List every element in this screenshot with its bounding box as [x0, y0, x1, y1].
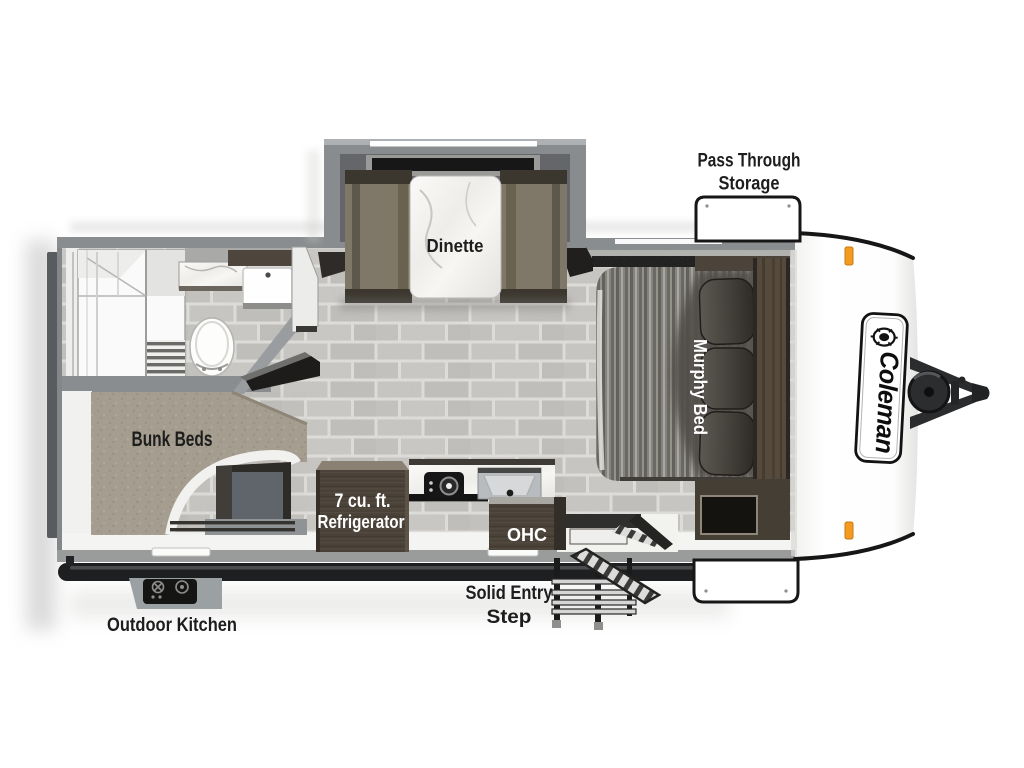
svg-text:Coleman: Coleman — [870, 351, 905, 454]
svg-text:Dinette: Dinette — [427, 235, 484, 256]
svg-text:Step: Step — [487, 606, 532, 628]
svg-text:7 cu. ft.: 7 cu. ft. — [335, 491, 391, 512]
svg-text:Storage: Storage — [719, 173, 780, 195]
svg-text:Outdoor Kitchen: Outdoor Kitchen — [107, 614, 237, 636]
svg-text:Solid Entry: Solid Entry — [466, 582, 553, 604]
svg-text:Pass Through: Pass Through — [698, 150, 801, 172]
svg-text:OHC: OHC — [507, 525, 547, 545]
svg-text:Refrigerator: Refrigerator — [318, 512, 405, 532]
svg-text:Murphy Bed: Murphy Bed — [690, 339, 711, 435]
svg-text:Bunk Beds: Bunk Beds — [132, 428, 213, 451]
